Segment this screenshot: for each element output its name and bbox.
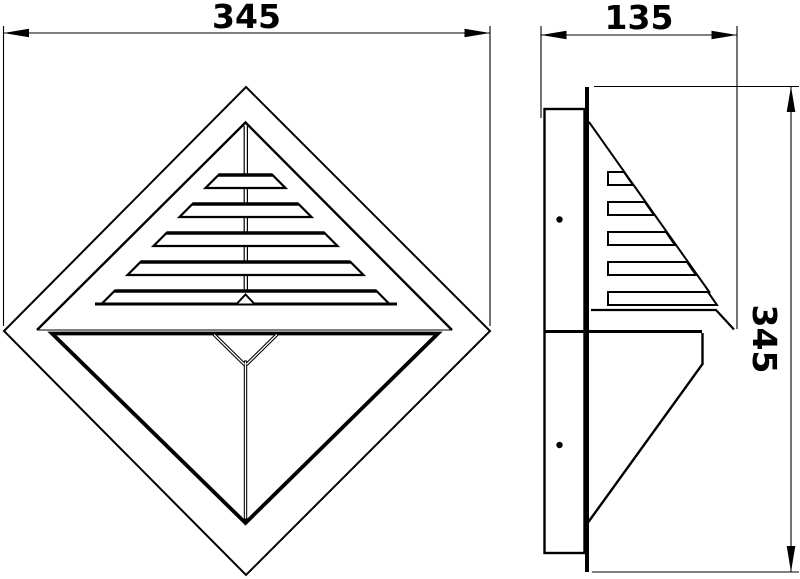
arrowhead-right-icon (465, 29, 491, 37)
front-view (4, 87, 490, 575)
dimension-label-side-height: 345 (745, 305, 784, 374)
front-louver-slat-3 (154, 233, 338, 246)
dimension-label-side-depth: 135 (605, 0, 674, 37)
arrowhead-left-icon (4, 29, 30, 37)
side-mounting-hole-top (556, 216, 562, 222)
front-louver-slat-2 (180, 204, 312, 217)
side-louver-blade-1 (608, 172, 633, 185)
arrowhead-down-icon (787, 546, 796, 572)
arrowhead-up-icon (787, 87, 796, 113)
side-louver-blade-4 (608, 262, 696, 275)
side-view (544, 87, 734, 572)
side-louver-frame-edge (591, 310, 734, 330)
dimension-label-front-width: 345 (212, 0, 281, 36)
side-louver-blade-2 (608, 202, 654, 215)
technical-drawing-canvas: 345 135 345 (0, 0, 800, 579)
arrowhead-left-icon (541, 31, 567, 39)
side-louver-blades (608, 172, 717, 305)
side-louver-blade-5 (608, 292, 717, 305)
dimension-side-height: 345 (592, 87, 799, 573)
front-louver-slat-4 (128, 262, 364, 275)
side-mounting-hole-bottom (556, 442, 562, 448)
front-louver-slat-1 (206, 175, 286, 188)
side-diffuser-profile (588, 333, 703, 523)
arrowhead-right-icon (712, 31, 738, 39)
side-louver-blade-3 (608, 232, 675, 245)
drawing-page: 345 135 345 (0, 0, 800, 579)
